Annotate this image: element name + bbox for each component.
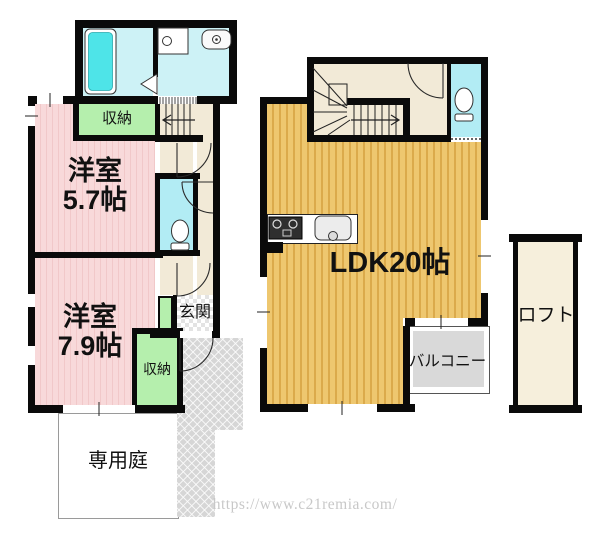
hallway-1f <box>160 142 193 173</box>
window-marker <box>481 220 488 293</box>
window-marker <box>308 404 377 412</box>
room-ldk <box>267 318 403 404</box>
wall <box>155 104 160 135</box>
label-private-garden: 専用庭 <box>68 442 168 482</box>
shoe-cabinet <box>158 296 173 331</box>
kitchen-counter <box>267 214 358 244</box>
label-ldk: LDK20帖 <box>300 244 480 284</box>
watermark-url: https://www.c21remia.com/ <box>183 493 427 517</box>
label-loft: ロフト <box>515 302 577 330</box>
window-marker <box>415 318 468 326</box>
wall <box>75 20 237 28</box>
room-toilet-1f <box>160 179 193 250</box>
stair-opening <box>158 96 197 104</box>
bedroom-b-name: 洋室 <box>63 303 117 332</box>
wall <box>155 135 203 142</box>
bedroom-b-size: 7.9帖 <box>58 332 123 361</box>
label-storage-upper: 収納 <box>79 104 155 135</box>
room-bathroom <box>83 28 153 96</box>
wall <box>153 28 158 77</box>
wall <box>75 20 83 104</box>
window-marker <box>28 106 35 126</box>
room-toilet-2f <box>451 64 481 137</box>
wall <box>229 20 237 104</box>
window-marker <box>63 405 135 413</box>
wall <box>155 173 160 258</box>
label-entrance: 玄関 <box>175 298 215 328</box>
wall <box>509 405 582 413</box>
label-storage-lower: 収納 <box>130 356 184 384</box>
wall <box>73 135 160 141</box>
entrance-door-opening <box>180 331 212 338</box>
wall <box>307 135 451 142</box>
wall <box>509 234 582 242</box>
staircase-1f <box>160 104 197 135</box>
room-washroom <box>158 28 229 96</box>
window-marker <box>37 96 63 104</box>
wall <box>347 98 410 105</box>
hallway-1f <box>160 256 193 295</box>
floor-plan: 収納 洋室 5.7帖 洋室 7.9帖 玄関 収納 専用庭 LDK20帖 バルコニ… <box>0 0 600 542</box>
wall <box>447 63 451 137</box>
bedroom-a-name: 洋室 <box>68 157 122 186</box>
label-bedroom-a: 洋室 5.7帖 <box>35 150 155 222</box>
wall <box>260 97 313 104</box>
bedroom-a-size: 5.7帖 <box>63 186 128 215</box>
wall <box>307 57 488 64</box>
approach-path <box>177 338 243 430</box>
label-balcony: バルコニー <box>400 350 495 374</box>
wall <box>262 242 283 253</box>
room-ldk <box>267 104 307 142</box>
wall <box>260 97 267 412</box>
wall <box>28 252 163 258</box>
wall <box>193 179 198 250</box>
window-marker <box>260 277 267 348</box>
